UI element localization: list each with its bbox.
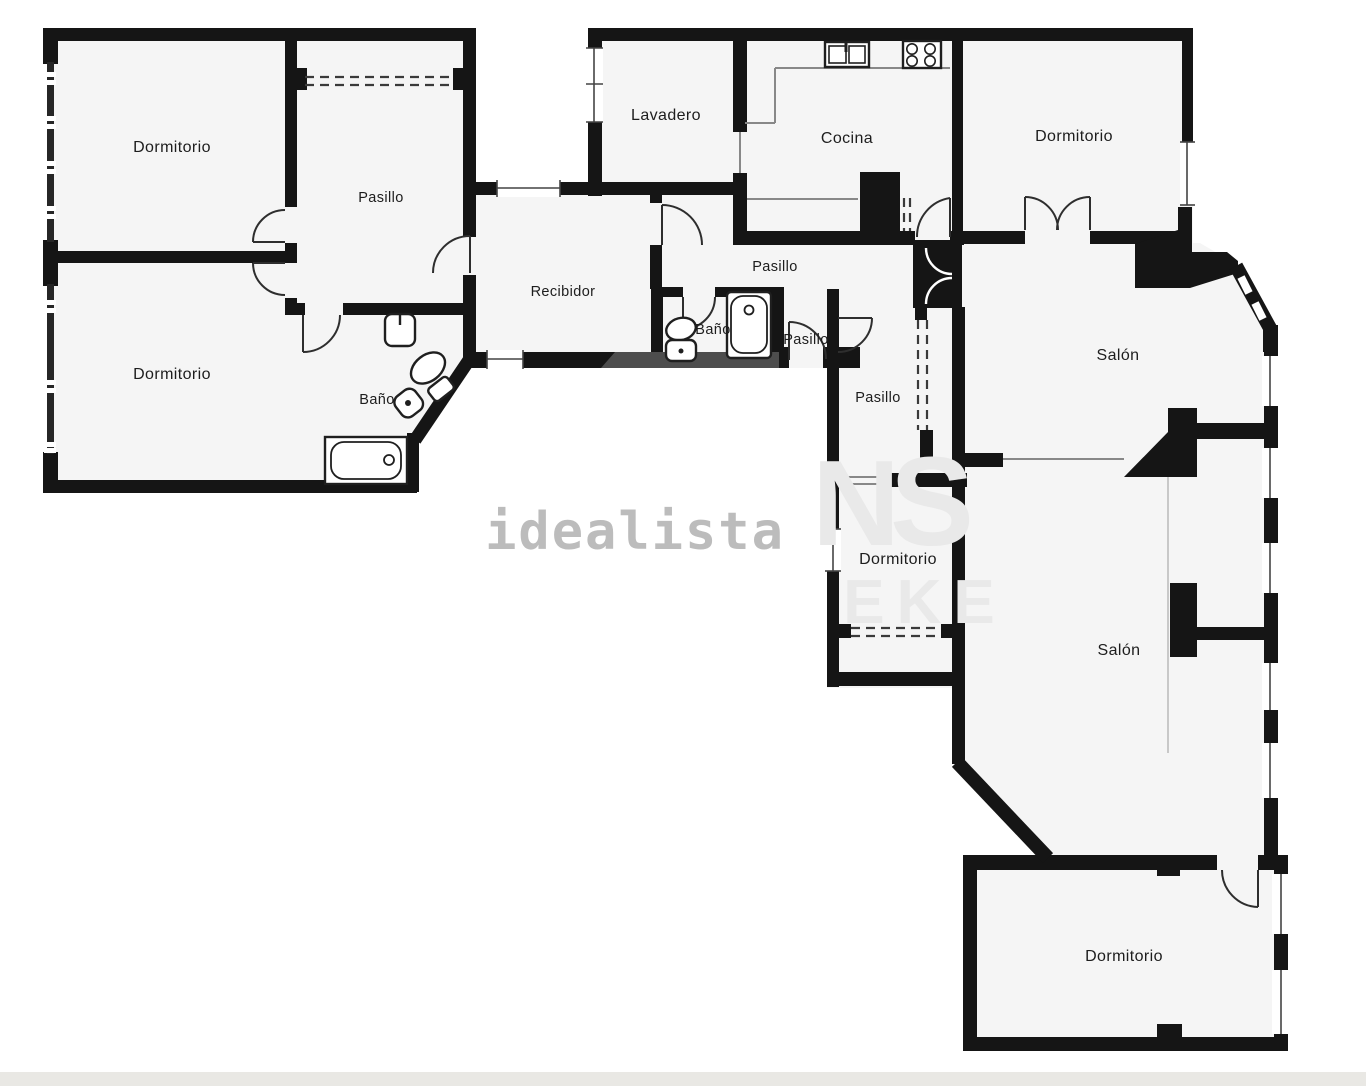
floorplan-page: Dormitorio Pasillo Dormitorio Baño Recib…	[0, 0, 1366, 1086]
floorplan-svg: Dormitorio Pasillo Dormitorio Baño Recib…	[0, 0, 1366, 1086]
bathtub-icon	[325, 437, 407, 484]
room-label-dormitorio-top-left: Dormitorio	[133, 139, 211, 156]
toilet-icon	[385, 314, 415, 346]
room-label-bano-left: Baño	[359, 392, 394, 408]
bathtub-2-icon	[727, 292, 771, 358]
room-label-pasillo-entrada: Pasillo	[783, 332, 829, 348]
kitchen-sink-icon	[825, 42, 869, 67]
stove-icon	[903, 41, 941, 68]
room-label-bano-central: Baño	[695, 322, 730, 338]
bottom-bar	[0, 1072, 1366, 1086]
watermarks: N S EKE idealista	[485, 431, 1007, 637]
watermark-letters-eke: EKE	[843, 568, 1006, 637]
room-label-recibidor: Recibidor	[531, 284, 596, 300]
room-label-salon-inferior: Salón	[1098, 642, 1141, 659]
room-label-dormitorio-mid-left: Dormitorio	[133, 366, 211, 383]
watermark-letter-n: N	[812, 435, 900, 571]
room-label-pasillo-central: Pasillo	[752, 259, 798, 275]
room-label-lavadero: Lavadero	[631, 107, 701, 124]
watermark-idealista: idealista	[485, 502, 785, 562]
room-label-pasillo-vertical: Pasillo	[855, 390, 901, 406]
room-label-salon-superior: Salón	[1097, 347, 1140, 364]
room-label-dormitorio-bottom-right: Dormitorio	[1085, 948, 1163, 965]
watermark-letter-s: S	[890, 431, 974, 572]
room-label-cocina: Cocina	[821, 130, 873, 147]
room-label-dormitorio-top-right: Dormitorio	[1035, 128, 1113, 145]
room-label-pasillo-top-left: Pasillo	[358, 190, 404, 206]
